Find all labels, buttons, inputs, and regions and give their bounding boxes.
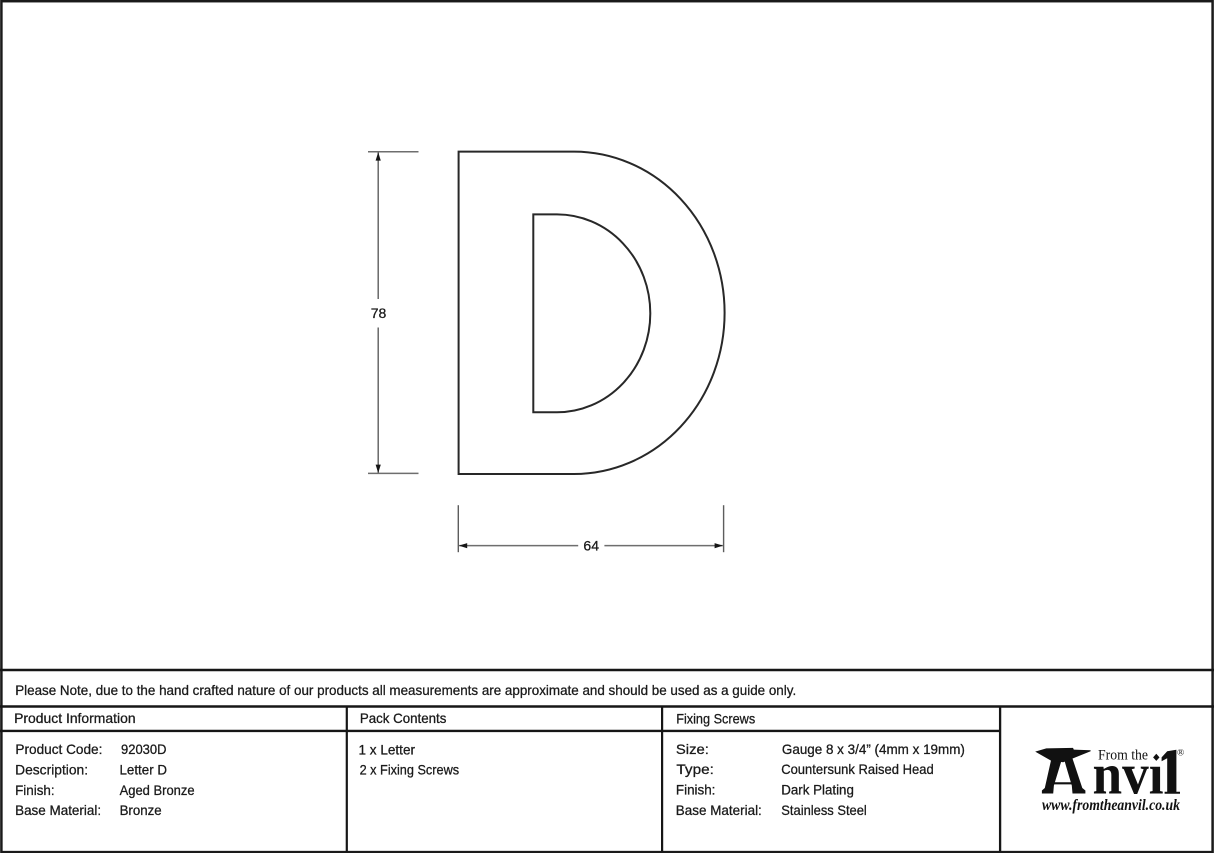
svg-text:78: 78 bbox=[371, 305, 387, 321]
svg-text:Pack Contents: Pack Contents bbox=[360, 710, 447, 726]
svg-text:Type:: Type: bbox=[676, 761, 714, 777]
svg-text:92030D: 92030D bbox=[121, 741, 167, 757]
svg-text:64: 64 bbox=[583, 538, 599, 554]
svg-text:Fixing Screws: Fixing Screws bbox=[676, 710, 755, 726]
svg-text:www.fromtheanvil.co.uk: www.fromtheanvil.co.uk bbox=[1042, 797, 1180, 814]
svg-text:Finish:: Finish: bbox=[15, 782, 55, 798]
svg-text:2 x Fixing Screws: 2 x Fixing Screws bbox=[360, 762, 460, 778]
svg-text:Product Code:: Product Code: bbox=[15, 741, 102, 757]
svg-text:Countersunk Raised Head: Countersunk Raised Head bbox=[781, 761, 934, 777]
svg-text:Description:: Description: bbox=[15, 762, 88, 778]
svg-text:Dark Plating: Dark Plating bbox=[781, 782, 854, 798]
svg-text:1 x Letter: 1 x Letter bbox=[359, 741, 416, 757]
svg-text:®: ® bbox=[1177, 748, 1184, 759]
svg-text:Aged Bronze: Aged Bronze bbox=[120, 782, 195, 798]
svg-text:Size:: Size: bbox=[676, 741, 709, 757]
svg-text:Base Material:: Base Material: bbox=[15, 802, 101, 818]
svg-text:Product Information: Product Information bbox=[14, 710, 136, 726]
svg-text:Stainless Steel: Stainless Steel bbox=[781, 802, 867, 818]
svg-text:Letter D: Letter D bbox=[120, 762, 168, 778]
svg-text:Please Note, due to the hand c: Please Note, due to the hand crafted nat… bbox=[15, 682, 796, 698]
svg-text:Base Material:: Base Material: bbox=[676, 802, 762, 818]
svg-text:Bronze: Bronze bbox=[120, 802, 162, 818]
svg-text:Finish:: Finish: bbox=[676, 782, 716, 798]
svg-text:Gauge 8 x 3/4” (4mm x 19mm): Gauge 8 x 3/4” (4mm x 19mm) bbox=[782, 741, 965, 757]
